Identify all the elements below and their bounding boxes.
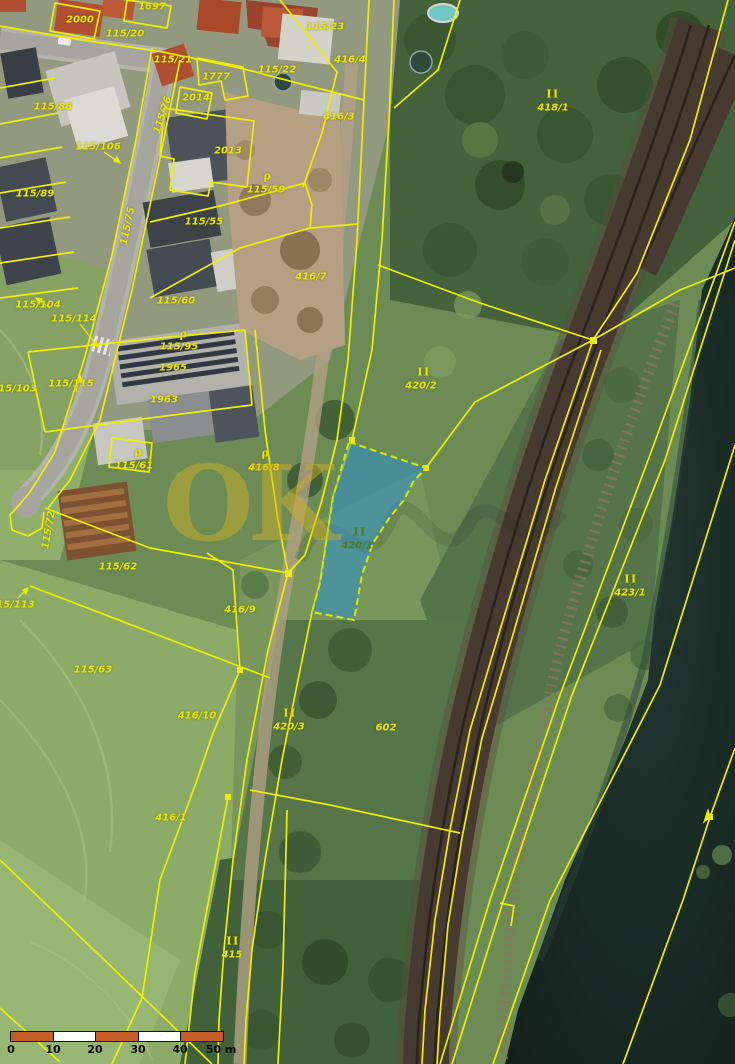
scale-segment: [11, 1032, 54, 1041]
scale-tick-label: 50 m: [206, 1043, 237, 1056]
scale-tick-label: 0: [7, 1043, 15, 1056]
scale-tick-label: 30: [130, 1043, 145, 1056]
scale-segment: [181, 1032, 223, 1041]
scale-segment: [54, 1032, 97, 1041]
scale-tick-label: 10: [45, 1043, 60, 1056]
cadastral-map-viewport[interactable]: 20001697115/20115/21177720142013115/2211…: [0, 0, 735, 1064]
scale-segment: [139, 1032, 182, 1041]
scale-tick-label: 40: [172, 1043, 187, 1056]
scale-bar: [10, 1031, 224, 1042]
scale-tick-label: 20: [87, 1043, 102, 1056]
cadastral-lines-layer: [0, 0, 735, 1064]
scale-segment: [96, 1032, 139, 1041]
